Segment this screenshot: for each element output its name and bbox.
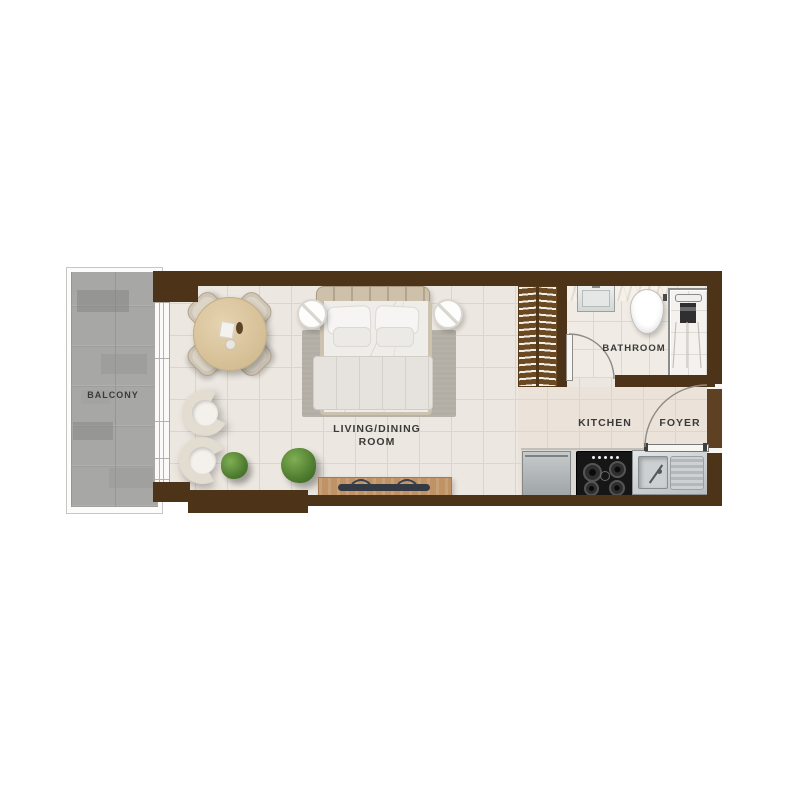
plant	[221, 452, 248, 479]
floor-plan: BALCONY LIVING/DINING ROOM BATHROOM KITC…	[0, 0, 800, 800]
bathroom-label: BATHROOM	[602, 343, 665, 354]
bathroom-door-leaf	[566, 334, 573, 381]
wall-right-upper	[707, 271, 722, 389]
shower-head-rail	[675, 294, 702, 302]
shower	[668, 288, 711, 379]
wall-top-left-block	[153, 271, 198, 302]
pillow	[376, 327, 414, 347]
stove-burner	[609, 461, 626, 478]
nightstand	[433, 299, 463, 329]
wall-bottom-left-stub	[153, 482, 190, 502]
living-dining-label-line1: LIVING/DINING	[333, 423, 421, 435]
bed-blanket	[313, 356, 433, 410]
concrete-patch	[77, 290, 129, 312]
stove-knob	[610, 456, 613, 459]
toilet-flush-button	[663, 294, 667, 301]
kitchen-label: KITCHEN	[578, 417, 632, 429]
wall-bottom-block	[188, 490, 308, 513]
wardrobe	[518, 286, 559, 387]
table-plate	[225, 339, 236, 350]
sink-basin	[582, 290, 610, 307]
bathroom-sink	[577, 284, 615, 312]
sliding-door-tick	[155, 479, 169, 480]
stove-center-ring	[600, 471, 610, 481]
kitchen-sink-unit	[632, 450, 708, 495]
sliding-door-tick	[155, 358, 169, 359]
entrance-door-hinge-cap	[644, 443, 648, 451]
foyer-label: FOYER	[659, 417, 700, 429]
wardrobe-rail	[539, 287, 556, 386]
armchair-seat	[189, 397, 222, 430]
stove-burner	[583, 463, 602, 482]
stove-knob	[598, 456, 601, 459]
pillow	[333, 327, 371, 347]
plant	[281, 448, 316, 483]
sliding-door-tick	[155, 421, 169, 422]
concrete-patch	[101, 354, 147, 374]
stove-knob	[592, 456, 595, 459]
entrance-door-end-cap	[703, 443, 707, 451]
wall-top	[153, 271, 722, 286]
stove	[576, 451, 634, 497]
wall-bottom-run	[306, 495, 722, 506]
tv	[338, 484, 430, 491]
balcony-label: BALCONY	[87, 390, 139, 400]
sink-drainboard	[670, 456, 704, 490]
nightstand	[297, 299, 327, 329]
entrance-door-leaf	[645, 444, 709, 452]
faucet-base	[657, 469, 662, 474]
stove-burner	[584, 481, 599, 496]
stove-burner	[609, 480, 625, 496]
shower-control-band	[680, 307, 696, 311]
wall-bathroom-bottom-right	[615, 375, 715, 387]
armchair-seat	[186, 444, 219, 477]
sink-basin	[638, 456, 668, 489]
wardrobe-rail	[519, 287, 536, 386]
refrigerator	[522, 451, 571, 497]
stove-knob	[604, 456, 607, 459]
stove-knob	[616, 456, 619, 459]
table-decor	[236, 322, 243, 334]
shower-control-panel	[680, 303, 696, 323]
concrete-patch	[109, 468, 153, 488]
dining-table	[193, 297, 267, 371]
living-dining-label-line2: ROOM	[359, 436, 396, 448]
sliding-door-tick	[155, 458, 169, 459]
concrete-patch	[73, 422, 113, 440]
table-napkin	[219, 321, 235, 339]
sliding-door	[154, 302, 170, 484]
fridge-handle	[525, 455, 568, 457]
wall-right-door-section	[707, 389, 722, 448]
